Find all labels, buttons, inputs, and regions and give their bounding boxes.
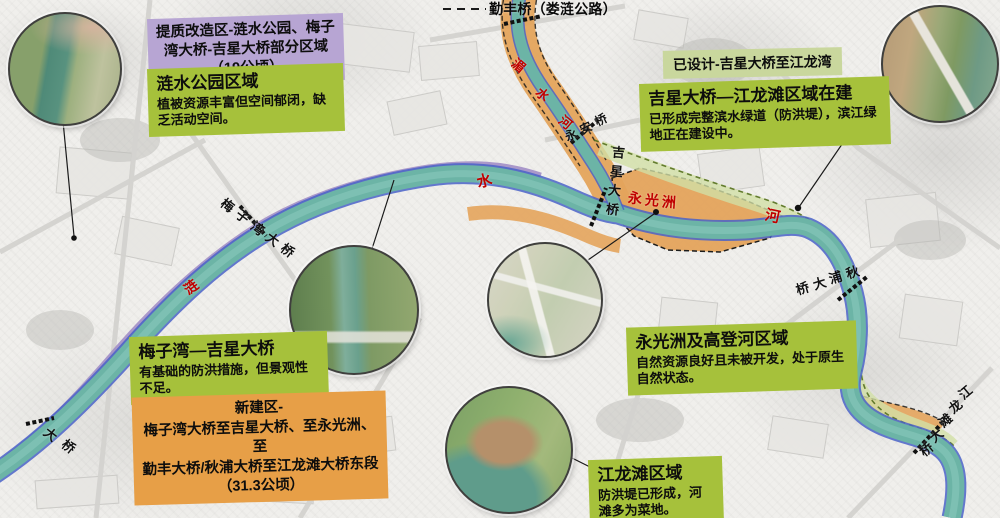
callout-yongguangzhou-gaodenghe: 永光洲及高登河区域 自然资源良好且未被开发，处于原生自然状态。 [626, 320, 858, 396]
callout-body: 已形成完整滨水绿道（防洪堤），滨江绿地正在建设中。 [649, 104, 882, 145]
callout-body: 植被资源丰富但空间郁闭，缺乏活动空间。 [157, 91, 336, 130]
riverfront-planning-map: 勤丰桥（娄涟公路）湄水河涟水河永光洲永安桥吉星大桥梅子湾大桥秋浦大桥江龙滩大桥大… [0, 0, 1000, 518]
photo-inset-lianshui-park [8, 12, 122, 126]
callout-lianshui-park: 涟水公园区域 植被资源丰富但空间郁闭，缺乏活动空间。 [147, 63, 345, 137]
callout-new-zone: 新建区- 梅子湾大桥至吉星大桥、至永光洲、至 勤丰大桥/秋浦大桥至江龙滩大桥东段… [132, 390, 389, 505]
callout-body: 自然资源良好且未被开发，处于原生自然状态。 [636, 348, 849, 388]
callout-title: 涟水公园区域 [156, 69, 335, 94]
callout-designed-label: 已设计-吉星大桥至江龙湾 [663, 47, 842, 79]
callout-jianglongtan: 江龙滩区域 防洪堤已形成，河滩多为菜地。 [588, 456, 724, 518]
photo-inset-construction [881, 5, 999, 123]
callout-text: 已设计-吉星大桥至江龙湾 [673, 53, 832, 72]
callout-line: 梅子湾大桥至吉星大桥、至永光洲、至 [139, 415, 380, 461]
photo-inset-jianglongtan-village [445, 386, 573, 514]
callout-body: 防洪堤已形成，河滩多为菜地。 [598, 484, 715, 518]
photo-inset-confluence-roads [487, 242, 603, 358]
callout-jixing-jianglongtan: 吉星大桥—江龙滩区域在建 已形成完整滨水绿道（防洪堤），滨江绿地正在建设中。 [639, 76, 891, 152]
callout-title: 江龙滩区域 [597, 462, 714, 485]
